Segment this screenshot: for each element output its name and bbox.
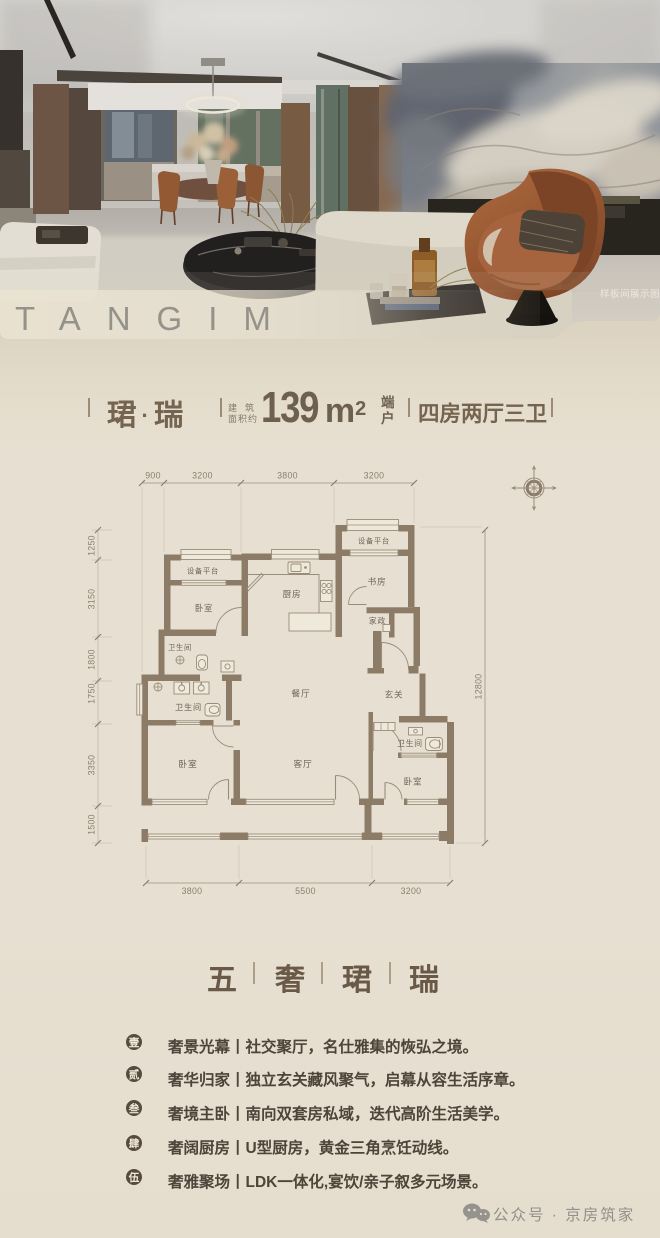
svg-text:叁: 叁 [128, 1102, 140, 1115]
svg-text:5500: 5500 [295, 886, 316, 896]
svg-text:3150: 3150 [87, 589, 97, 610]
svg-text:肆: 肆 [129, 1137, 140, 1150]
svg-text:卫生间: 卫生间 [175, 702, 202, 712]
svg-text:1750: 1750 [87, 683, 97, 704]
svg-text:3800: 3800 [182, 886, 203, 896]
svg-text:设备平台: 设备平台 [187, 567, 219, 576]
svg-text:书房: 书房 [368, 576, 387, 587]
svg-text:3200: 3200 [364, 471, 385, 481]
svg-text:12800: 12800 [474, 674, 484, 700]
svg-text:900: 900 [145, 471, 161, 481]
svg-text:客厅: 客厅 [293, 758, 312, 769]
svg-text:卫生间: 卫生间 [397, 738, 423, 748]
svg-text:卧室: 卧室 [195, 603, 213, 613]
svg-text:1500: 1500 [87, 814, 97, 835]
svg-text:玄关: 玄关 [385, 689, 404, 700]
svg-text:1800: 1800 [87, 649, 97, 670]
svg-text:3350: 3350 [87, 755, 97, 776]
svg-text:壹: 壹 [129, 1036, 140, 1049]
svg-text:3200: 3200 [401, 886, 422, 896]
svg-text:贰: 贰 [129, 1068, 140, 1081]
svg-text:TANGIM: TANGIM [15, 300, 297, 337]
svg-text:卧室: 卧室 [404, 776, 423, 787]
svg-text:卧室: 卧室 [178, 758, 197, 769]
svg-text:家政: 家政 [369, 616, 386, 626]
svg-text:伍: 伍 [128, 1171, 140, 1184]
svg-text:样板间展示图: 样板间展示图 [600, 288, 660, 300]
svg-text:餐厅: 餐厅 [291, 688, 310, 699]
svg-text:3200: 3200 [192, 471, 213, 481]
svg-text:厨房: 厨房 [283, 588, 302, 599]
svg-text:卫生间: 卫生间 [168, 643, 192, 652]
svg-text:设备平台: 设备平台 [358, 537, 390, 546]
svg-text:1250: 1250 [87, 535, 97, 556]
svg-text:3800: 3800 [277, 471, 298, 481]
